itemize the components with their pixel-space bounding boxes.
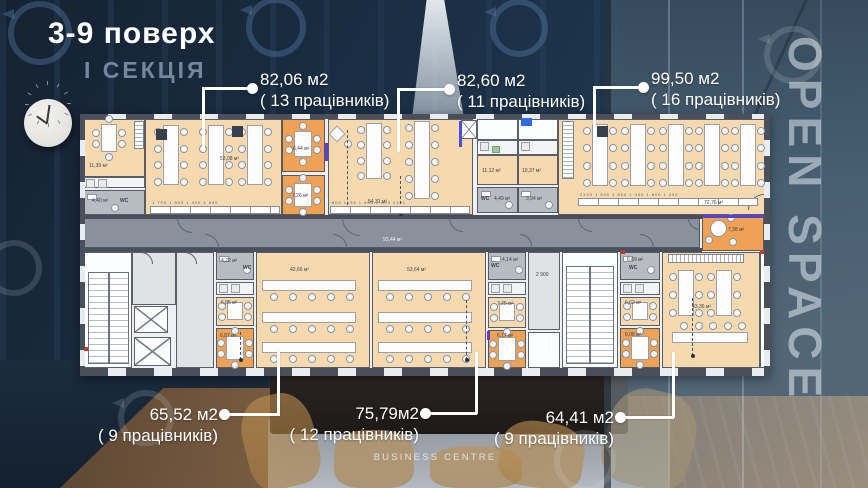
shaft xyxy=(461,120,477,139)
room-label-r449: 4,49 м² xyxy=(494,196,510,202)
room-label-r440: 4,40 м² xyxy=(92,198,108,204)
chair-icon xyxy=(609,179,617,187)
kitchen-sink-icon xyxy=(492,146,500,153)
chair-icon xyxy=(405,293,413,301)
chair-icon xyxy=(154,145,162,153)
chair-icon xyxy=(583,179,591,187)
leader-line xyxy=(428,412,477,415)
chair-icon xyxy=(733,273,741,281)
chair-icon xyxy=(685,179,693,187)
elevator-shaft xyxy=(134,306,168,333)
chair-icon xyxy=(327,293,335,301)
chair-icon xyxy=(357,126,365,134)
table-icon xyxy=(226,336,244,360)
room-lob2 xyxy=(176,252,214,368)
room-label-os3: 72,76 м² xyxy=(704,200,723,206)
desk-icon xyxy=(366,123,382,179)
chair-icon xyxy=(731,179,739,187)
desk-icon xyxy=(414,121,430,199)
table-icon xyxy=(631,336,649,360)
chair-icon xyxy=(92,140,100,148)
room-lobE xyxy=(132,252,176,305)
section-subtitle: І СЕКЦІЯ xyxy=(84,57,207,84)
chair-icon xyxy=(92,129,100,137)
chair-icon xyxy=(346,355,354,363)
room-label-b3: 43,36 м² xyxy=(692,304,711,310)
chair-icon xyxy=(299,174,307,182)
room-label-mC: 7,38 м² xyxy=(728,227,744,233)
chair-icon xyxy=(346,293,354,301)
radiator-row xyxy=(330,206,470,214)
dashed-line xyxy=(466,300,467,360)
room-label-r394: 3,94 м² xyxy=(526,196,542,202)
kitchen-unit-icon xyxy=(521,142,530,151)
callout-area-bottom-2: 75,79м2 ( 12 працівників) xyxy=(280,403,419,445)
callout-workers: ( 16 працівників) xyxy=(651,89,780,110)
chair-icon xyxy=(621,179,629,187)
chair-icon xyxy=(238,178,246,186)
room-label-r1037: 10,37 м² xyxy=(522,168,541,174)
chair-icon xyxy=(695,179,703,187)
room-wc-tag: WC xyxy=(491,263,499,269)
callout-area-bottom-3: 64,41 м2 ( 9 працівників) xyxy=(475,407,614,449)
room-label-r1112: 11,12 м² xyxy=(482,168,501,174)
chair-icon xyxy=(757,162,765,170)
chair-icon xyxy=(733,309,741,317)
chair-icon xyxy=(405,325,413,333)
chair-icon xyxy=(621,162,629,170)
window-accent xyxy=(487,331,490,340)
chair-icon xyxy=(622,350,630,358)
chair-icon xyxy=(659,179,667,187)
toilet-icon xyxy=(515,266,523,274)
chair-icon xyxy=(609,162,617,170)
chair-icon xyxy=(218,313,226,321)
chair-icon xyxy=(245,339,253,347)
chair-icon xyxy=(695,291,703,299)
callout-area-top-1: 82,06 м2 ( 13 працівників) xyxy=(260,69,389,111)
survey-dot xyxy=(239,358,243,362)
chair-icon xyxy=(308,325,316,333)
table-icon xyxy=(498,337,516,361)
chair-icon xyxy=(383,157,391,165)
leader-line xyxy=(475,352,478,414)
radiator-row xyxy=(578,198,758,206)
toilet-icon xyxy=(545,201,553,209)
chair-icon xyxy=(443,355,451,363)
desk-icon xyxy=(208,125,224,185)
chair-icon xyxy=(405,355,413,363)
chair-icon xyxy=(707,273,715,281)
chair-icon xyxy=(231,361,239,369)
room-label-m726: 7,26 м² xyxy=(292,193,308,199)
cabinet-strip xyxy=(134,121,144,149)
vent-dot xyxy=(760,250,764,254)
chair-icon xyxy=(636,361,644,369)
chair-icon xyxy=(180,128,188,136)
survey-dot xyxy=(691,354,695,358)
chair-icon xyxy=(685,127,693,135)
room-label-r617: 6,17 м² xyxy=(497,333,513,339)
chair-icon xyxy=(695,309,703,317)
chair-icon xyxy=(490,314,498,322)
round-table-icon xyxy=(710,220,727,237)
cabinet-strip xyxy=(668,254,744,263)
chair-icon xyxy=(405,192,413,200)
chair-icon xyxy=(443,293,451,301)
window-accent xyxy=(703,215,763,218)
chair-icon xyxy=(180,145,188,153)
room-corr xyxy=(83,218,700,248)
chair-icon xyxy=(695,273,703,281)
desk-icon xyxy=(630,124,646,186)
room-label-corr: 93,44 м² xyxy=(383,237,402,243)
corridor-wall-bottom xyxy=(83,248,702,252)
leader-line xyxy=(593,86,643,89)
room-label-r414: 4,14 м² xyxy=(502,257,518,263)
chair-icon xyxy=(516,303,524,311)
kitchen-unit-icon xyxy=(623,284,632,293)
stair-divider xyxy=(108,272,110,364)
chair-icon xyxy=(659,127,667,135)
room-wc-tag: WC xyxy=(120,198,128,204)
desk-icon xyxy=(668,124,684,186)
leader-dot xyxy=(420,408,431,419)
room-label-b1: 42,66 м² xyxy=(290,267,309,273)
callout-area-bottom-1: 65,52 м2 ( 9 працівників) xyxy=(80,404,218,446)
chair-icon xyxy=(217,350,225,358)
page-title: 3-9 поверх xyxy=(48,17,216,51)
desk-icon xyxy=(247,125,263,185)
chair-icon xyxy=(517,340,525,348)
kitchen-unit-icon xyxy=(503,284,512,293)
callout-area-value: 65,52 м2 xyxy=(80,404,218,425)
chair-icon xyxy=(707,291,715,299)
leader-dot xyxy=(444,84,455,95)
chair-icon xyxy=(285,135,293,143)
chair-icon xyxy=(431,124,439,132)
chair-icon xyxy=(729,238,737,246)
leader-line xyxy=(202,88,205,152)
kitchen-unit-icon xyxy=(86,179,95,188)
chair-icon xyxy=(118,129,126,137)
room-c1s xyxy=(477,119,518,140)
window-accent xyxy=(459,121,462,147)
chair-icon xyxy=(424,293,432,301)
leader-dot xyxy=(638,82,649,93)
chair-icon xyxy=(516,314,524,322)
chair-icon xyxy=(721,179,729,187)
chair-icon xyxy=(583,127,591,135)
desk-icon xyxy=(704,124,720,186)
chair-icon xyxy=(383,172,391,180)
outer-wall-top xyxy=(80,114,770,119)
chair-icon xyxy=(609,127,617,135)
chair-icon xyxy=(669,273,677,281)
table-icon xyxy=(101,124,117,152)
chair-icon xyxy=(431,158,439,166)
chair-icon xyxy=(264,178,272,186)
chair-icon xyxy=(517,351,525,359)
chair-icon xyxy=(731,127,739,135)
room-label-r685: 6,85 м² xyxy=(221,300,237,306)
kitchen-unit-icon xyxy=(231,284,240,293)
chair-icon xyxy=(647,127,655,135)
room-label-r662: 6,62 м² xyxy=(625,300,641,306)
chair-icon xyxy=(154,178,162,186)
kitchen-unit-icon xyxy=(635,284,644,293)
radiator-row xyxy=(150,206,280,214)
desk-icon xyxy=(716,270,732,316)
chair-icon xyxy=(724,322,732,330)
chair-icon xyxy=(308,293,316,301)
chair-icon xyxy=(327,325,335,333)
chair-icon xyxy=(264,128,272,136)
survey-dot xyxy=(465,358,469,362)
leader-dot xyxy=(219,409,230,420)
printer-icon xyxy=(156,129,167,140)
chair-icon xyxy=(225,145,233,153)
chair-icon xyxy=(313,186,321,194)
chair-icon xyxy=(238,145,246,153)
chair-icon xyxy=(695,127,703,135)
outer-wall-bottom xyxy=(80,368,770,376)
leader-line xyxy=(397,88,449,91)
outer-wall-right xyxy=(764,114,770,376)
chair-icon xyxy=(118,140,126,148)
leader-line xyxy=(202,87,252,90)
kitchen-unit-icon xyxy=(480,142,489,151)
dimension-text: 2100 1 500 1 800 1 400 1 800 1 400 xyxy=(580,192,679,197)
chair-icon xyxy=(405,141,413,149)
chair-icon xyxy=(357,172,365,180)
desk-icon xyxy=(740,124,756,186)
chair-icon xyxy=(738,322,746,330)
callout-workers: ( 12 працівників) xyxy=(280,424,419,445)
chair-icon xyxy=(489,351,497,359)
chair-icon xyxy=(669,309,677,317)
chair-icon xyxy=(647,162,655,170)
vent-box xyxy=(521,118,532,126)
desk-icon xyxy=(378,280,472,291)
desk-icon xyxy=(672,332,748,343)
chair-icon xyxy=(386,293,394,301)
chair-icon xyxy=(431,175,439,183)
chair-icon xyxy=(299,158,307,166)
chair-icon xyxy=(503,362,511,370)
room-label-r687: 6,87 м² xyxy=(220,333,236,339)
outer-wall-left xyxy=(80,114,85,376)
desk-icon xyxy=(378,312,472,323)
leader-line xyxy=(593,87,596,175)
callout-area-value: 82,60 м2 xyxy=(457,70,585,91)
chair-icon xyxy=(647,179,655,187)
chair-icon xyxy=(431,192,439,200)
chair-icon xyxy=(299,208,307,216)
stair-divider xyxy=(589,266,591,364)
callout-workers: ( 13 працівників) xyxy=(260,90,389,111)
chair-icon xyxy=(244,313,252,321)
printer-icon xyxy=(232,126,243,137)
toilet-icon xyxy=(647,266,655,274)
chair-icon xyxy=(621,127,629,135)
chair-icon xyxy=(405,124,413,132)
room-label-os1: 53,08 м² xyxy=(220,156,239,162)
chair-icon xyxy=(705,236,713,244)
kitchen-unit-icon xyxy=(98,179,107,188)
callout-workers: ( 11 працівників) xyxy=(457,91,585,112)
callout-area-value: 75,79м2 xyxy=(280,403,419,424)
leader-line xyxy=(228,413,278,416)
elevator-shaft xyxy=(134,337,171,366)
chair-icon xyxy=(245,350,253,358)
chair-icon xyxy=(709,322,717,330)
chair-icon xyxy=(650,350,658,358)
chair-icon xyxy=(386,355,394,363)
chair-icon xyxy=(383,126,391,134)
sink-icon xyxy=(491,256,501,262)
chair-icon xyxy=(199,178,207,186)
toilet-icon xyxy=(505,201,513,209)
cabinet-strip xyxy=(562,121,574,179)
leader-line xyxy=(672,352,675,418)
room-label-m644: 6,44 м² xyxy=(293,146,309,152)
chair-icon xyxy=(313,197,321,205)
chair-icon xyxy=(721,127,729,135)
callout-workers: ( 9 працівників) xyxy=(475,428,614,449)
chair-icon xyxy=(424,355,432,363)
chair-icon xyxy=(649,313,657,321)
callout-area-value: 99,50 м2 xyxy=(651,68,780,89)
chair-icon xyxy=(244,302,252,310)
chair-icon xyxy=(289,325,297,333)
dashed-line xyxy=(347,130,348,210)
callout-area-value: 64,41 м2 xyxy=(475,407,614,428)
window-accent xyxy=(325,143,328,161)
leader-line xyxy=(624,416,674,419)
chair-icon xyxy=(707,309,715,317)
kitchen-unit-icon xyxy=(219,284,228,293)
chair-icon xyxy=(225,178,233,186)
chair-icon xyxy=(489,340,497,348)
room-label-r609: 6,09 м² xyxy=(627,257,643,263)
kitchen-unit-icon xyxy=(491,284,500,293)
chair-icon xyxy=(443,325,451,333)
room-wc-tag: WC xyxy=(243,265,251,271)
room-label-r1139: 11,39 м² xyxy=(89,163,108,169)
room-wc-tag: WC xyxy=(629,265,637,271)
chair-icon xyxy=(695,322,703,330)
chair-icon xyxy=(327,355,335,363)
leader-line xyxy=(397,89,400,152)
chair-icon xyxy=(289,293,297,301)
vent-dot xyxy=(621,250,625,254)
printer-icon xyxy=(597,126,608,137)
presentation-slide: OPEN SPACE 1 795 1 800 1 400 1 600800 16… xyxy=(0,0,868,488)
chair-icon xyxy=(344,140,352,148)
dashed-line xyxy=(240,332,241,360)
chair-icon xyxy=(583,162,591,170)
room-label-os2: 54,31 м² xyxy=(368,199,387,205)
chair-icon xyxy=(731,162,739,170)
chair-icon xyxy=(685,162,693,170)
desk-icon xyxy=(378,342,472,353)
chair-icon xyxy=(680,322,688,330)
chair-icon xyxy=(757,179,765,187)
chair-icon xyxy=(299,122,307,130)
desk-icon xyxy=(262,312,356,323)
vent-dot xyxy=(84,347,88,351)
chair-icon xyxy=(386,325,394,333)
desk-icon xyxy=(262,280,356,291)
callout-area-top-2: 82,60 м2 ( 11 працівників) xyxy=(457,70,585,112)
room-wc-tag: WC xyxy=(481,196,489,202)
chair-icon xyxy=(431,141,439,149)
chair-icon xyxy=(105,153,113,161)
chair-icon xyxy=(313,146,321,154)
room-label-g29: 2 900 xyxy=(536,272,549,278)
dimension-text: 1 795 1 800 1 400 1 600 xyxy=(152,200,218,205)
chair-icon xyxy=(264,145,272,153)
corridor-wall-top xyxy=(83,215,702,219)
chair-icon xyxy=(217,339,225,347)
chair-icon xyxy=(622,339,630,347)
callout-workers: ( 9 працівників) xyxy=(80,425,218,446)
chair-icon xyxy=(180,178,188,186)
leader-dot xyxy=(615,412,626,423)
table-icon xyxy=(294,131,312,157)
footer-text: BUSINESS CENTRE xyxy=(350,452,520,463)
chair-icon xyxy=(405,158,413,166)
chair-icon xyxy=(669,291,677,299)
callout-area-top-3: 99,50 м2 ( 16 працівників) xyxy=(651,68,780,110)
chair-icon xyxy=(346,325,354,333)
chair-icon xyxy=(650,339,658,347)
chair-icon xyxy=(405,175,413,183)
room-vest xyxy=(528,332,560,368)
chair-icon xyxy=(270,325,278,333)
chair-icon xyxy=(757,127,765,135)
leader-dot xyxy=(247,83,258,94)
chair-icon xyxy=(424,325,432,333)
room-label-b2: 53,64 м² xyxy=(407,267,426,273)
chair-icon xyxy=(270,293,278,301)
room-label-r422: 4,22 м² xyxy=(221,258,237,264)
chair-icon xyxy=(733,291,741,299)
chair-icon xyxy=(659,162,667,170)
toilet-icon xyxy=(111,204,119,212)
chair-icon xyxy=(105,115,113,123)
chair-icon xyxy=(721,162,729,170)
chair-icon xyxy=(695,162,703,170)
chair-icon xyxy=(308,355,316,363)
chair-icon xyxy=(285,146,293,154)
room-label-r725: 7,25 м² xyxy=(497,301,513,307)
chair-icon xyxy=(649,302,657,310)
chair-icon xyxy=(623,313,631,321)
callout-area-value: 82,06 м2 xyxy=(260,69,389,90)
chair-icon xyxy=(289,355,297,363)
chair-icon xyxy=(357,157,365,165)
room-label-r608: 6,08 м² xyxy=(625,332,641,338)
chair-icon xyxy=(313,135,321,143)
room-g29 xyxy=(528,252,560,330)
